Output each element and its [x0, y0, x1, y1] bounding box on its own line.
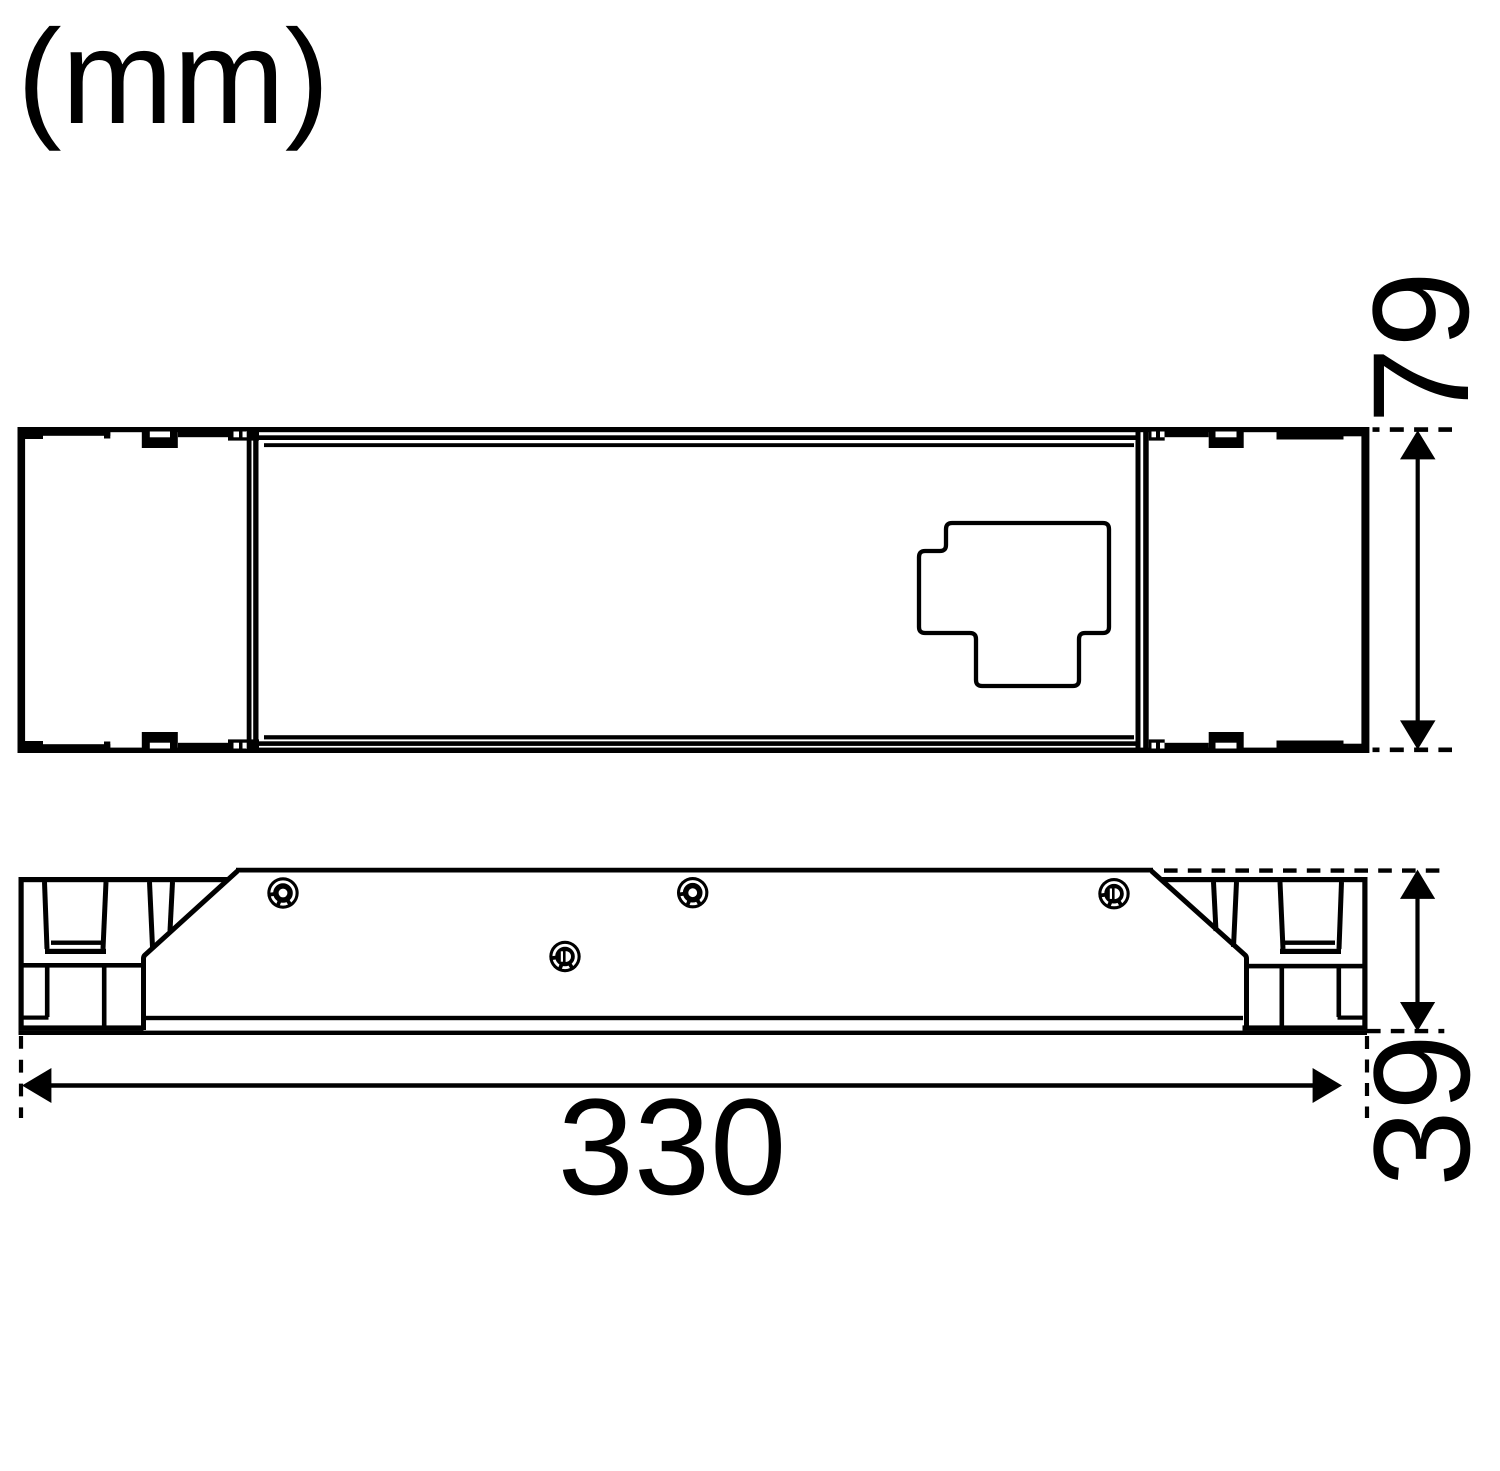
svg-text:330: 330 — [558, 1071, 787, 1224]
svg-text:(mm): (mm) — [17, 3, 330, 152]
svg-text:39: 39 — [1346, 1034, 1499, 1186]
svg-text:79: 79 — [1345, 271, 1498, 423]
